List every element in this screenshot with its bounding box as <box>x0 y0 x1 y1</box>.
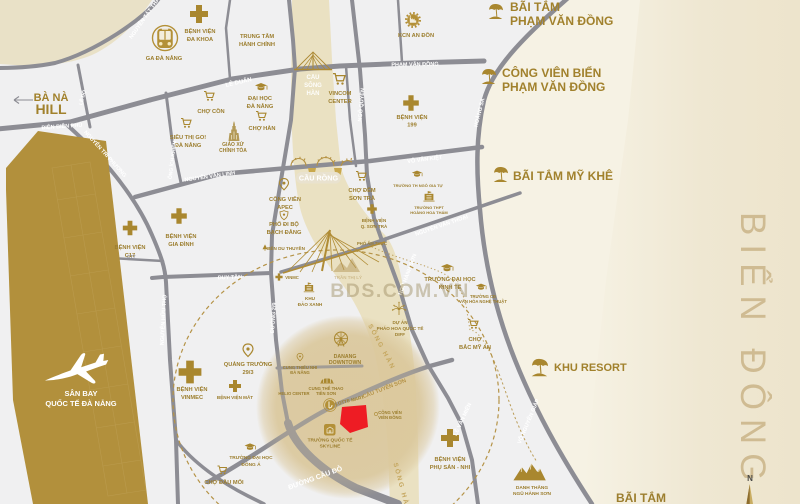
svg-text:BỆNH VIỆN: BỆNH VIỆN <box>362 216 387 223</box>
svg-text:GIA ĐÌNH: GIA ĐÌNH <box>168 240 193 248</box>
svg-text:GIÁO XỨ: GIÁO XỨ <box>222 141 245 148</box>
svg-text:VINMC: VINMC <box>285 275 299 280</box>
svg-text:BỆNH VIỆN MẮT: BỆNH VIỆN MẮT <box>217 393 253 400</box>
svg-text:PHẠM VĂN ĐỒNG: PHẠM VĂN ĐỒNG <box>391 61 438 69</box>
svg-text:CHỢ ĐẦU MỐI: CHỢ ĐẦU MỐI <box>204 479 244 486</box>
svg-text:QUỐC TẾ ĐÀ NẴNG: QUỐC TẾ ĐÀ NẴNG <box>45 398 116 408</box>
svg-text:HÀNH CHÍNH: HÀNH CHÍNH <box>239 40 275 48</box>
svg-text:KHU: KHU <box>305 296 316 301</box>
svg-text:BẠCH ĐẰNG: BẠCH ĐẰNG <box>267 228 302 236</box>
svg-text:BỆNH VIỆN: BỆNH VIỆN <box>185 27 216 35</box>
svg-text:BỆNH VIỆN: BỆNH VIỆN <box>166 232 197 240</box>
svg-text:TRƯỜNG TH NGÔ GIA TỰ: TRƯỜNG TH NGÔ GIA TỰ <box>393 183 443 188</box>
svg-text:PHẠM VĂN ĐỒNG: PHẠM VĂN ĐỒNG <box>502 79 605 94</box>
svg-text:DUY TÂN: DUY TÂN <box>218 274 243 282</box>
svg-text:CHỢ HÀN: CHỢ HÀN <box>249 125 276 132</box>
svg-text:BÃI TẮM: BÃI TẮM <box>510 0 560 14</box>
svg-text:BÃI TẮM MỸ KHÊ: BÃI TẮM MỸ KHÊ <box>513 168 613 183</box>
svg-text:DỰ ÁN: DỰ ÁN <box>392 319 408 325</box>
svg-text:TIÊN SƠN: TIÊN SƠN <box>316 391 336 396</box>
svg-text:CHÍNH TÒA: CHÍNH TÒA <box>219 146 247 154</box>
svg-text:PHỐ ĐI BỘ: PHỐ ĐI BỘ <box>269 220 299 228</box>
svg-text:PHỤ SẢN - NHI: PHỤ SẢN - NHI <box>430 464 471 471</box>
svg-text:DOWNTOWN: DOWNTOWN <box>329 360 361 366</box>
svg-text:BẾN DU THUYỀN: BẾN DU THUYỀN <box>267 245 305 251</box>
svg-text:GA ĐÀ NẴNG: GA ĐÀ NẴNG <box>146 55 183 62</box>
svg-text:BỆNH VIỆN: BỆNH VIỆN <box>115 243 146 251</box>
svg-text:BỆNH VIỆN: BỆNH VIỆN <box>397 113 428 121</box>
svg-text:QUẢNG TRƯỜNG: QUẢNG TRƯỜNG <box>224 360 273 368</box>
svg-text:TRUNG TÂM: TRUNG TÂM <box>240 33 274 40</box>
svg-text:Q. SƠN TRÀ: Q. SƠN TRÀ <box>361 223 388 229</box>
svg-text:HOÀNG HOA THÁM: HOÀNG HOA THÁM <box>410 210 448 215</box>
svg-text:VIỄN ĐÔNG: VIỄN ĐÔNG <box>378 415 402 420</box>
svg-text:PHẠM VĂN ĐỒNG: PHẠM VĂN ĐỒNG <box>510 13 613 28</box>
svg-text:BDS.COM.VN: BDS.COM.VN <box>330 280 470 302</box>
svg-text:BỆNH VIỆN: BỆNH VIỆN <box>177 385 208 393</box>
svg-text:KHU RESORT: KHU RESORT <box>554 362 627 374</box>
svg-text:N: N <box>747 474 753 483</box>
svg-text:SÂN BAY: SÂN BAY <box>64 389 97 398</box>
svg-text:PHÁO HOA QUỐC TẾ: PHÁO HOA QUỐC TẾ <box>377 325 424 331</box>
svg-text:DIFF: DIFF <box>395 332 405 337</box>
svg-text:199: 199 <box>407 123 417 129</box>
svg-text:CENTER: CENTER <box>328 99 351 105</box>
svg-text:SƠN TRÀ: SƠN TRÀ <box>349 195 375 202</box>
svg-text:SKYLINE: SKYLINE <box>320 444 342 450</box>
svg-text:CẦU RỒNG: CẦU RỒNG <box>299 173 339 183</box>
svg-text:HÀN: HÀN <box>307 90 320 97</box>
svg-text:CÔNG VIÊN BIỂN: CÔNG VIÊN BIỂN <box>502 65 601 80</box>
svg-text:SÔNG: SÔNG <box>304 81 322 89</box>
svg-text:SIÊU THỊ GO!: SIÊU THỊ GO! <box>170 133 206 141</box>
svg-text:APEC: APEC <box>277 205 293 211</box>
svg-text:CT7: CT7 <box>127 254 136 259</box>
svg-text:NGŨ HÀNH SƠN: NGŨ HÀNH SƠN <box>513 490 551 497</box>
svg-text:CHỢ: CHỢ <box>468 337 481 343</box>
svg-text:VINMEC: VINMEC <box>181 395 203 401</box>
svg-text:CÔNG VIÊN: CÔNG VIÊN <box>269 195 301 203</box>
svg-text:ĐẠI HỌC: ĐẠI HỌC <box>248 96 272 102</box>
svg-text:VINCOM: VINCOM <box>329 91 352 97</box>
svg-text:KCN AN ĐỒN: KCN AN ĐỒN <box>398 32 434 39</box>
svg-text:29/3: 29/3 <box>242 370 253 376</box>
svg-text:CHỢ ĐÊM: CHỢ ĐÊM <box>348 186 376 194</box>
svg-text:ĐÀ NẴNG: ĐÀ NẴNG <box>247 103 274 110</box>
svg-text:BỆNH VIỆN: BỆNH VIỆN <box>435 455 466 463</box>
svg-text:CẦU: CẦU <box>307 74 320 81</box>
svg-text:ĐÀ NẴNG: ĐÀ NẴNG <box>290 370 310 375</box>
svg-text:BÃI TẮM: BÃI TẮM <box>616 490 666 504</box>
svg-text:ĐÀ NẴNG: ĐÀ NẴNG <box>175 142 202 149</box>
svg-text:HILL: HILL <box>35 101 67 117</box>
svg-text:BẮC MỸ AN: BẮC MỸ AN <box>459 343 491 351</box>
svg-text:BIỂN ĐÔNG: BIỂN ĐÔNG <box>733 212 773 489</box>
svg-text:HELIO CENTER: HELIO CENTER <box>278 391 309 396</box>
svg-text:ĐA KHOA: ĐA KHOA <box>187 37 213 43</box>
svg-text:ĐẢO XANH: ĐẢO XANH <box>298 301 323 307</box>
svg-text:CHỢ CỒN: CHỢ CỒN <box>197 108 224 115</box>
